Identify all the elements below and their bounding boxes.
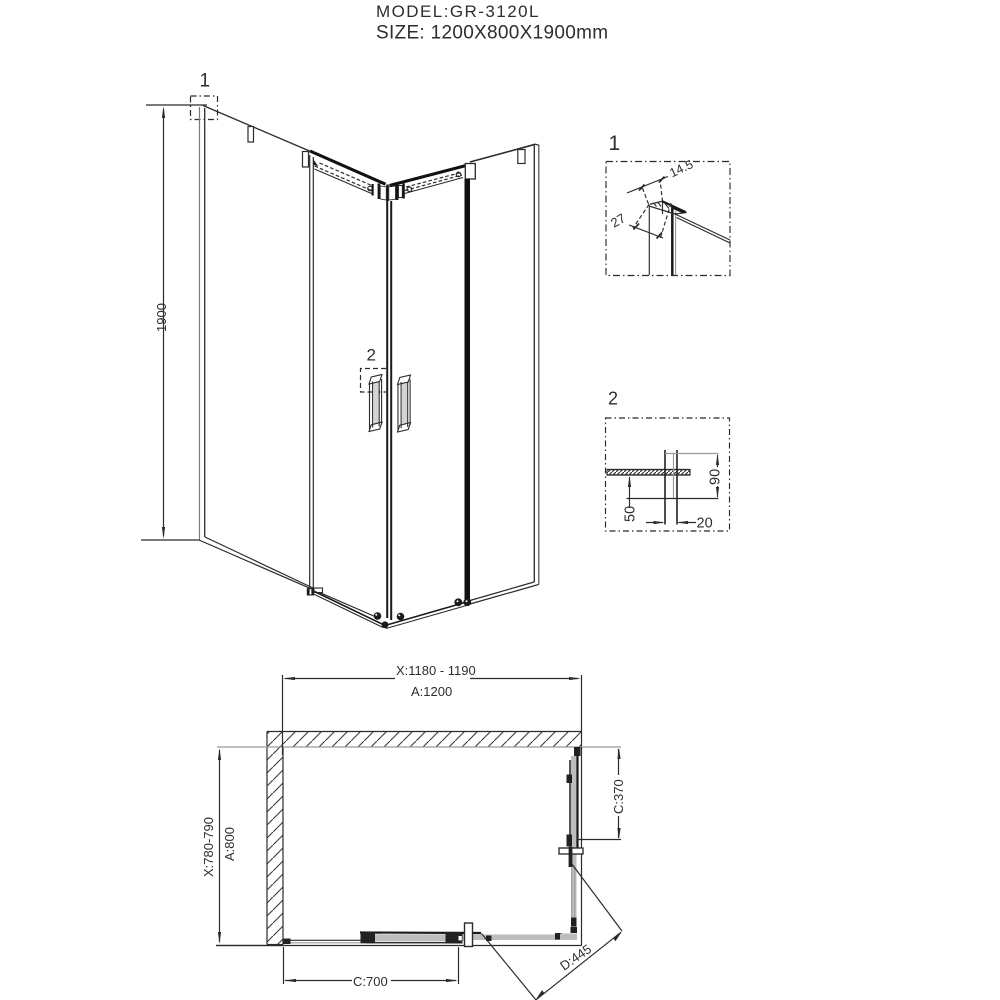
svg-text:SIZE: 1200X800X1900mm: SIZE: 1200X800X1900mm (376, 23, 608, 44)
svg-text:1900: 1900 (154, 303, 169, 332)
svg-text:2: 2 (367, 346, 376, 365)
svg-text:1: 1 (609, 132, 621, 155)
svg-text:C:370: C:370 (611, 779, 626, 814)
svg-text:1: 1 (200, 71, 211, 92)
svg-text:2: 2 (608, 389, 618, 409)
svg-text:90: 90 (708, 469, 724, 485)
svg-text:50: 50 (623, 506, 639, 522)
svg-text:MODEL:GR-3120L: MODEL:GR-3120L (376, 2, 540, 21)
svg-text:A:800: A:800 (222, 827, 237, 861)
svg-text:X:780-790: X:780-790 (201, 817, 216, 877)
svg-text:X:1180 - 1190: X:1180 - 1190 (396, 663, 476, 678)
svg-text:A:1200: A:1200 (411, 684, 452, 699)
svg-text:20: 20 (697, 516, 713, 532)
svg-text:C:700: C:700 (353, 974, 388, 989)
